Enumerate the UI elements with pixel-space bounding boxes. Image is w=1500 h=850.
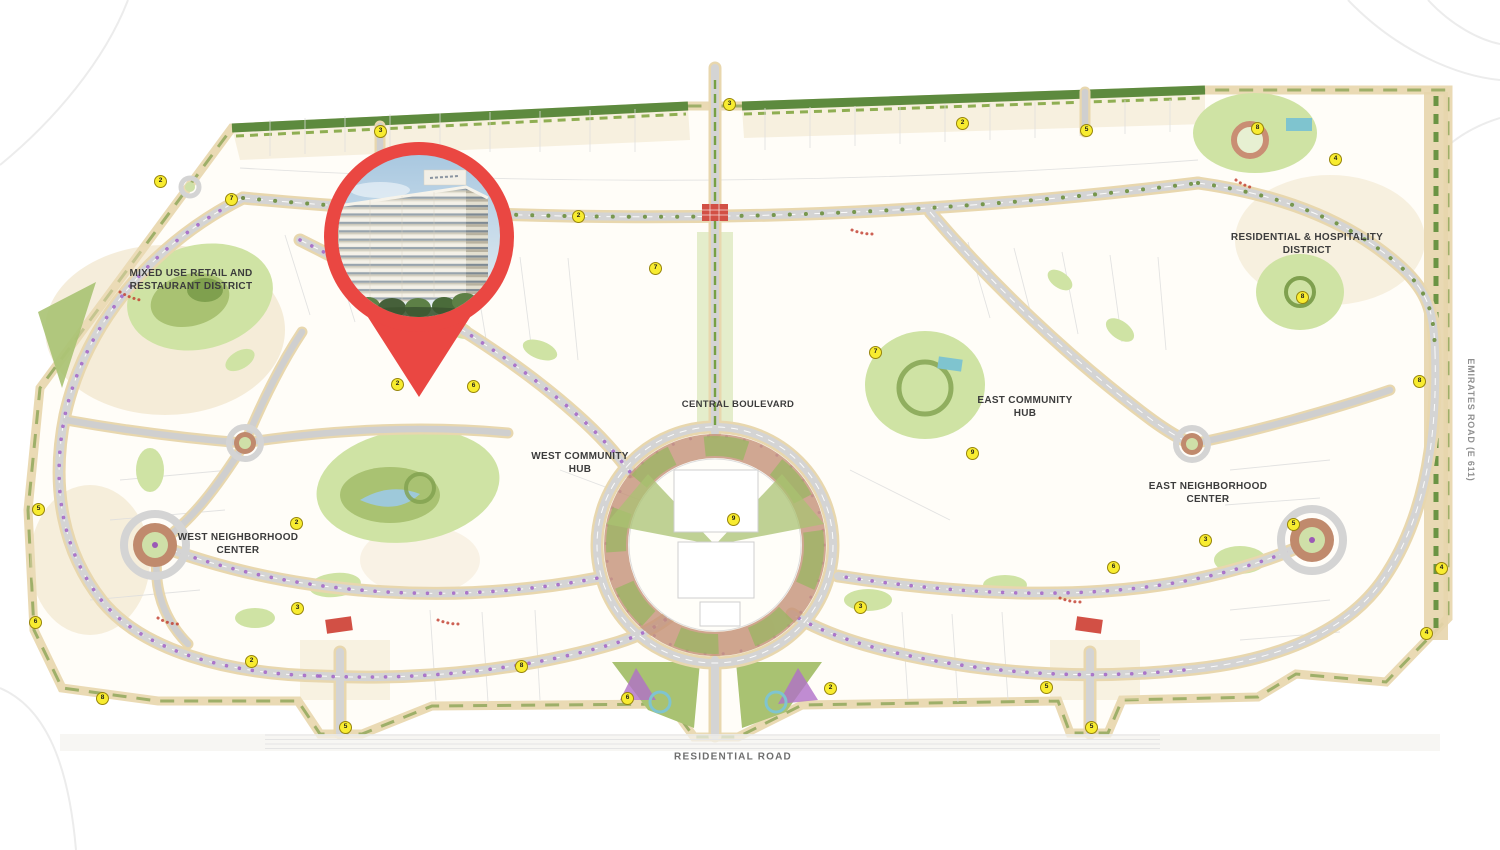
master-plan-map (0, 0, 1500, 850)
masterplan-screenshot: MIXED USE RETAIL AND RESTAURANT DISTRICT… (0, 0, 1500, 850)
central-plaza (606, 446, 824, 644)
location-pin[interactable] (310, 128, 530, 408)
residential-road-lanes (60, 734, 1440, 751)
